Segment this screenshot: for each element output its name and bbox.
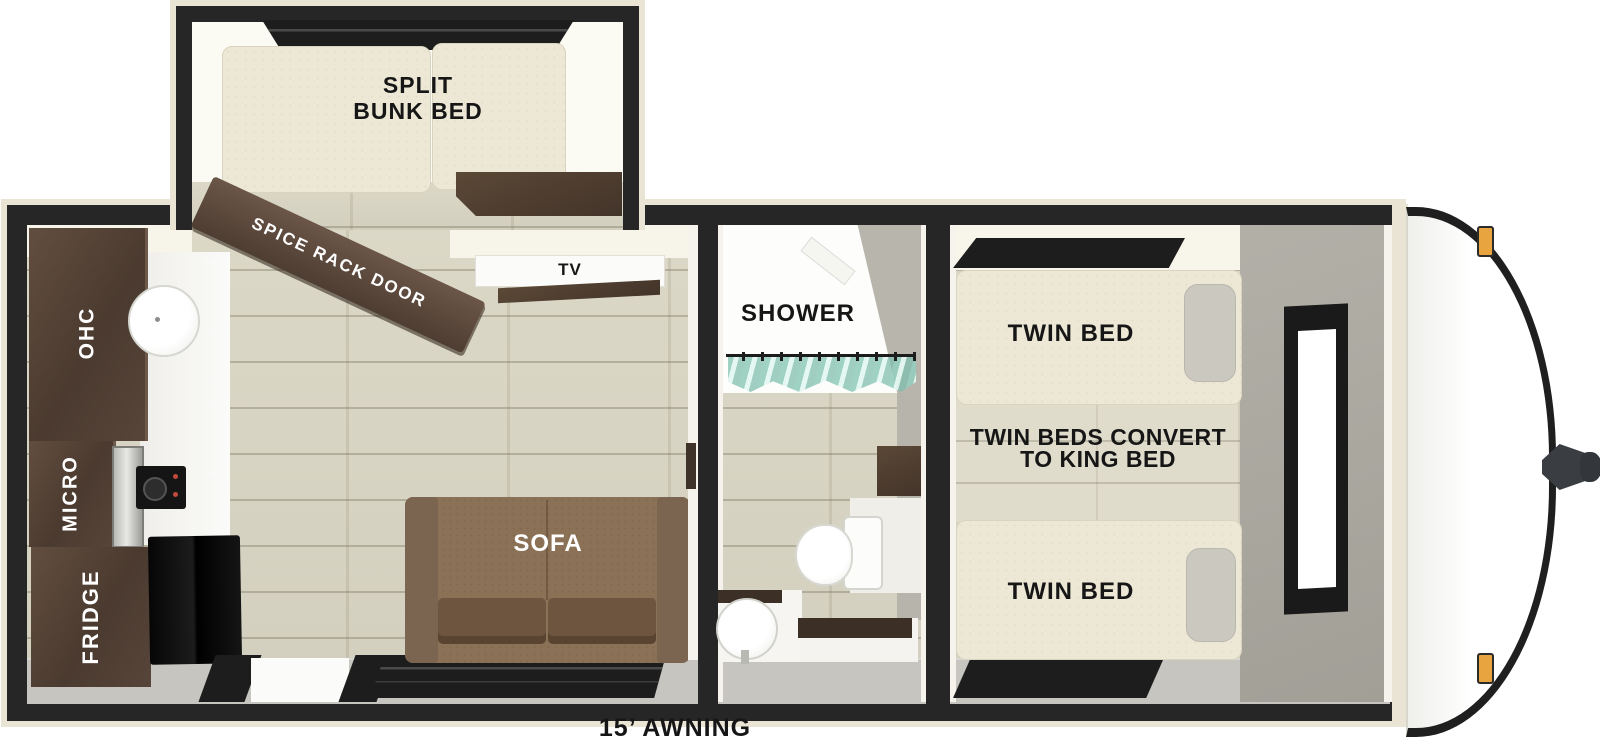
twin-bed-rear-pillow [1184, 284, 1236, 382]
bath-sink-faucet [741, 650, 749, 664]
toilet-bowl [795, 524, 853, 586]
sofa-seat-right [548, 598, 656, 644]
microwave-label: MICRO [60, 441, 83, 547]
bath-wall-left [698, 205, 718, 721]
bunk-corner-cabinet [456, 172, 622, 216]
bedroom-window-front [953, 660, 1163, 698]
shower-curtain-hooks [726, 352, 916, 361]
marker-light-bottom [1477, 653, 1494, 684]
fridge-label: FRIDGE [78, 547, 104, 687]
twin-bed-rear-label: TWIN BED [956, 320, 1186, 348]
awning-label: 15’ AWNING [500, 714, 850, 742]
sofa-arm-right [657, 497, 690, 663]
king-convert-note-line2: TO KING BED [956, 446, 1240, 473]
bunk-bed-label-line1: SPLIT [262, 72, 574, 99]
bath-door-pull [686, 443, 696, 489]
bath-right-inner-lining [921, 225, 926, 702]
sofa-arm-left [405, 497, 438, 663]
kitchen-sink-drain [155, 317, 160, 322]
cooktop-burner [143, 477, 167, 501]
cooktop-knob-1 [173, 474, 178, 479]
shower-label: SHOWER [723, 300, 873, 328]
hitch-coupler-ball [1580, 452, 1600, 482]
rv-floorplan: OHC MICRO FRIDGE SOFA TV SHOWER TWIN [0, 0, 1600, 742]
kitchen-sink [128, 285, 200, 357]
twin-bed-front-label: TWIN BED [956, 578, 1186, 606]
twin-bed-front-pillow [1186, 548, 1236, 642]
bunk-bed-label-line2: BUNK BED [262, 98, 574, 125]
bath-wall-cabinet [877, 446, 921, 496]
bedroom-window-rear [953, 238, 1185, 268]
cooktop-knob-2 [173, 492, 178, 497]
sofa-label: SOFA [438, 530, 658, 558]
bedroom-right-lining [1384, 225, 1392, 702]
sofa-seat-left [438, 598, 546, 644]
tv-label: TV [500, 260, 640, 280]
bath-vanity-ledge [798, 618, 912, 638]
bath-wall-right [926, 205, 950, 721]
marker-light-top [1477, 226, 1494, 257]
kitchen-lower-cabinet-front [204, 262, 230, 545]
bedroom-side-window-pane [1298, 329, 1336, 589]
overhead-cabinet-label: OHC [76, 227, 100, 440]
fridge-doors [148, 535, 242, 665]
entry-door [251, 658, 349, 702]
